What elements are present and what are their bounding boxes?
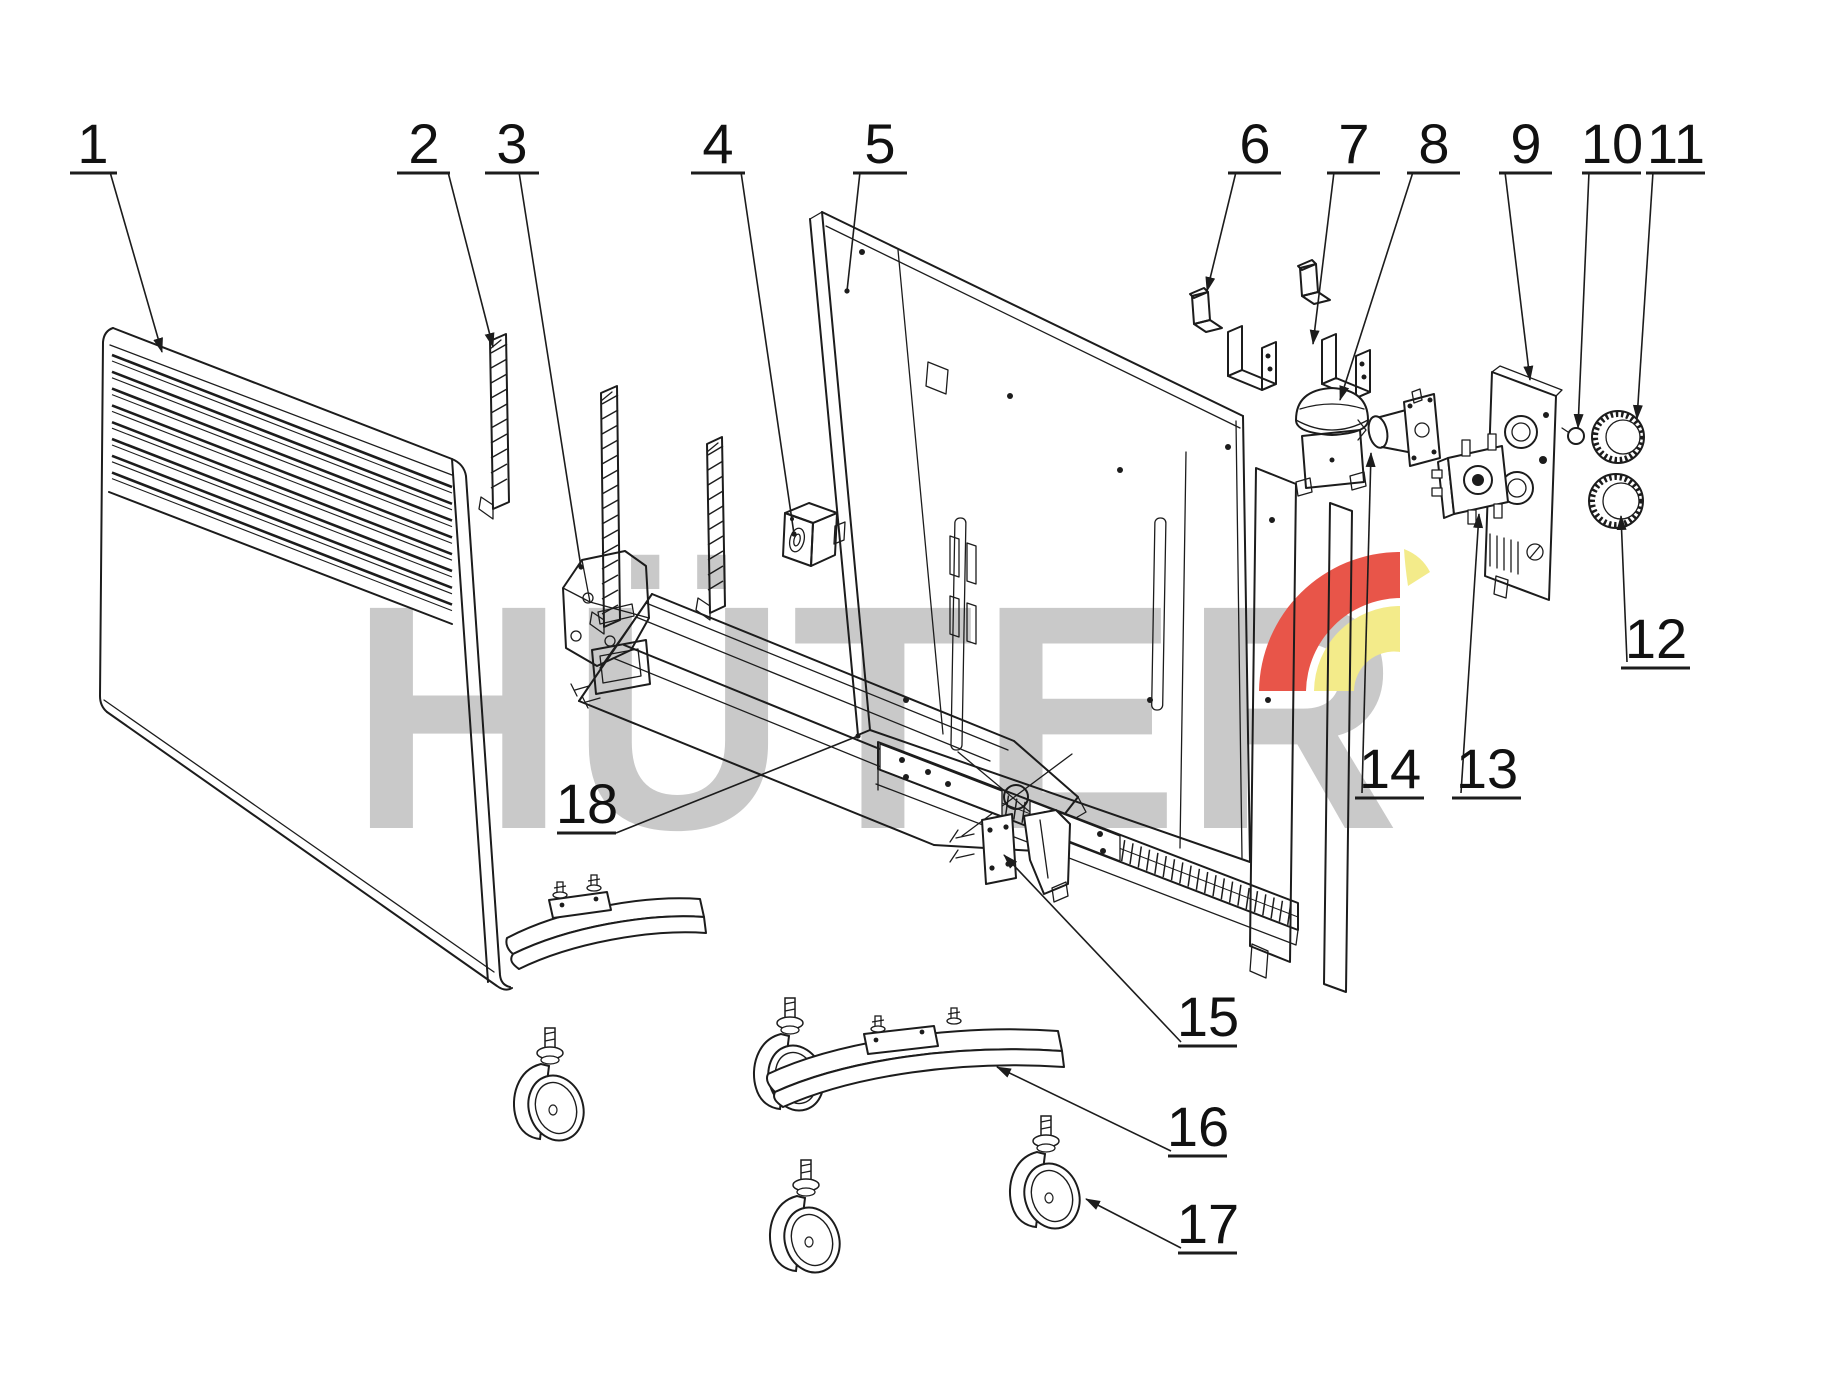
callout-11-leader xyxy=(1637,172,1653,419)
callout-14-label: 14 xyxy=(1359,737,1421,800)
callout-17: 17 xyxy=(1086,1192,1239,1255)
part-7-mounting-clips xyxy=(1298,260,1370,398)
part-13-rotary-switch xyxy=(1432,434,1508,524)
callout-11-label: 11 xyxy=(1647,112,1705,175)
callout-4-leader xyxy=(741,172,794,534)
callout-4: 4 xyxy=(691,112,794,534)
callout-3: 3 xyxy=(485,112,581,567)
callout-10-label: 10 xyxy=(1581,112,1643,175)
callout-5: 5 xyxy=(847,112,907,291)
callout-9: 9 xyxy=(1499,112,1552,380)
callout-5-label: 5 xyxy=(864,112,895,175)
part-6-mounting-clips xyxy=(1190,288,1276,390)
callout-9-leader xyxy=(1505,172,1530,380)
callout-1: 1 xyxy=(70,112,162,352)
callout-15-label: 15 xyxy=(1177,985,1239,1048)
callout-17-label: 17 xyxy=(1177,1192,1239,1255)
part-8-motor-dome xyxy=(1296,388,1368,496)
callout-1-label: 1 xyxy=(77,112,108,175)
callout-10: 10 xyxy=(1578,112,1643,428)
callout-17-leader xyxy=(1086,1199,1181,1248)
part-11-knob xyxy=(1592,411,1644,463)
caster-wheel xyxy=(514,1028,592,1148)
brand-logo-yellow-tip xyxy=(1404,549,1430,586)
part-10-ball-stud xyxy=(1562,428,1584,444)
callout-5-leader xyxy=(847,172,860,291)
callout-3-leader xyxy=(519,172,581,567)
callout-13-label: 13 xyxy=(1456,737,1518,800)
callout-1-leader xyxy=(110,172,162,352)
callout-6-label: 6 xyxy=(1239,112,1270,175)
callout-8-label: 8 xyxy=(1418,112,1449,175)
callout-16-label: 16 xyxy=(1167,1095,1229,1158)
callout-10-leader xyxy=(1578,172,1589,428)
watermark: HÜTER xyxy=(350,538,1430,896)
callout-11: 11 xyxy=(1637,112,1705,419)
part-12-knob xyxy=(1589,474,1643,528)
callout-4-label: 4 xyxy=(702,112,733,175)
callout-12: 12 xyxy=(1621,516,1690,670)
callout-16-leader xyxy=(997,1067,1171,1151)
caster-wheel xyxy=(1010,1116,1088,1236)
part-16-foot-b xyxy=(754,998,1064,1118)
callout-2: 2 xyxy=(397,112,493,347)
caster-wheel xyxy=(770,1160,848,1280)
callout-2-label: 2 xyxy=(408,112,439,175)
callout-7-label: 7 xyxy=(1338,112,1369,175)
callout-7-leader xyxy=(1313,172,1334,344)
diagram-canvas: HÜTER xyxy=(0,0,1821,1381)
callout-16: 16 xyxy=(997,1067,1229,1158)
callout-12-label: 12 xyxy=(1625,607,1687,670)
callout-3-label: 3 xyxy=(496,112,527,175)
callout-6-leader xyxy=(1207,172,1236,291)
callout-7: 7 xyxy=(1313,112,1380,344)
callout-2-leader xyxy=(448,172,493,347)
callout-18-label: 18 xyxy=(556,772,618,835)
callout-9-label: 9 xyxy=(1510,112,1541,175)
callout-8-leader xyxy=(1340,172,1413,400)
callout-6: 6 xyxy=(1207,112,1281,291)
